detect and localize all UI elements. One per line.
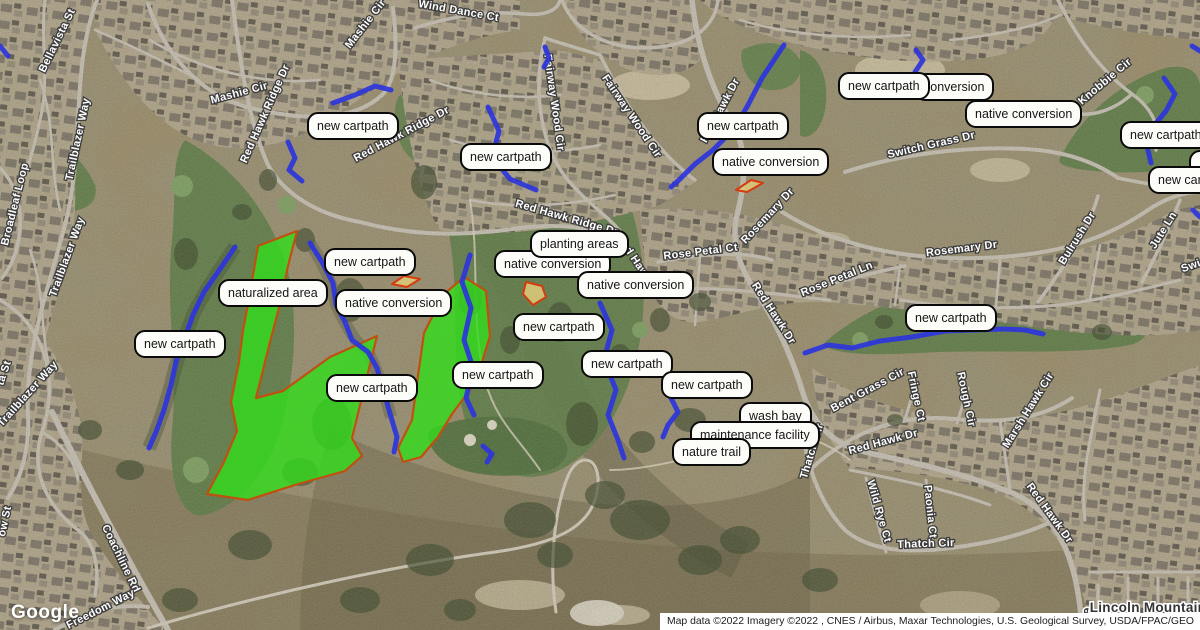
map-annotation-label[interactable]: new cartpath: [1120, 121, 1200, 149]
map-annotation-label[interactable]: new cartpath: [307, 112, 399, 140]
map-annotation-label[interactable]: new cartpath: [452, 361, 544, 389]
map-annotation-label[interactable]: new cartpath: [697, 112, 789, 140]
map-annotation-label[interactable]: new cartpath: [1148, 166, 1200, 194]
google-logo[interactable]: Google: [11, 602, 79, 624]
map-annotation-label[interactable]: new cartpath: [326, 374, 418, 402]
annotation-labels-layer: new cartpathnew cartpathnew cartpathnati…: [0, 0, 1200, 630]
map-annotation-label[interactable]: planting areas: [530, 230, 629, 258]
map-attribution: Map data ©2022 Imagery ©2022 , CNES / Ai…: [660, 613, 1200, 630]
map-annotation-label[interactable]: naturalized area: [218, 279, 328, 307]
map-annotation-label[interactable]: new cartpath: [134, 330, 226, 358]
map-annotation-label[interactable]: new cartpath: [838, 72, 930, 100]
map-annotation-label[interactable]: new cartpath: [460, 143, 552, 171]
map-annotation-label[interactable]: native conversion: [335, 289, 452, 317]
map-annotation-label[interactable]: new cartpath: [324, 248, 416, 276]
map-annotation-label[interactable]: nature trail: [672, 438, 751, 466]
map-annotation-label[interactable]: native conversion: [712, 148, 829, 176]
map-annotation-label[interactable]: new cartpath: [581, 350, 673, 378]
map-annotation-label[interactable]: native conversion: [577, 271, 694, 299]
map-viewport[interactable]: Bellavista StMashie CirWind Dance CtMash…: [0, 0, 1200, 630]
map-annotation-label[interactable]: new cartpath: [905, 304, 997, 332]
map-annotation-label[interactable]: native conversion: [965, 100, 1082, 128]
map-annotation-label[interactable]: new cartpath: [661, 371, 753, 399]
map-annotation-label[interactable]: new cartpath: [513, 313, 605, 341]
